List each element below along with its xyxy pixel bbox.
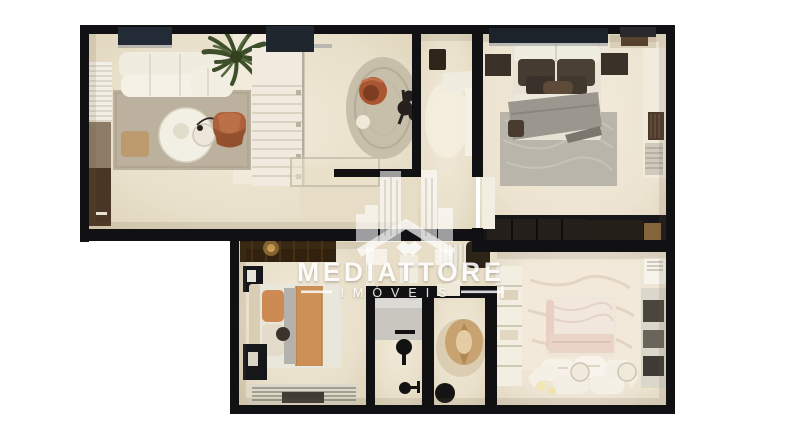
svg-text:MEDIATTORE: MEDIATTORE — [297, 257, 505, 287]
svg-text:IMÓVEIS: IMÓVEIS — [340, 285, 455, 300]
